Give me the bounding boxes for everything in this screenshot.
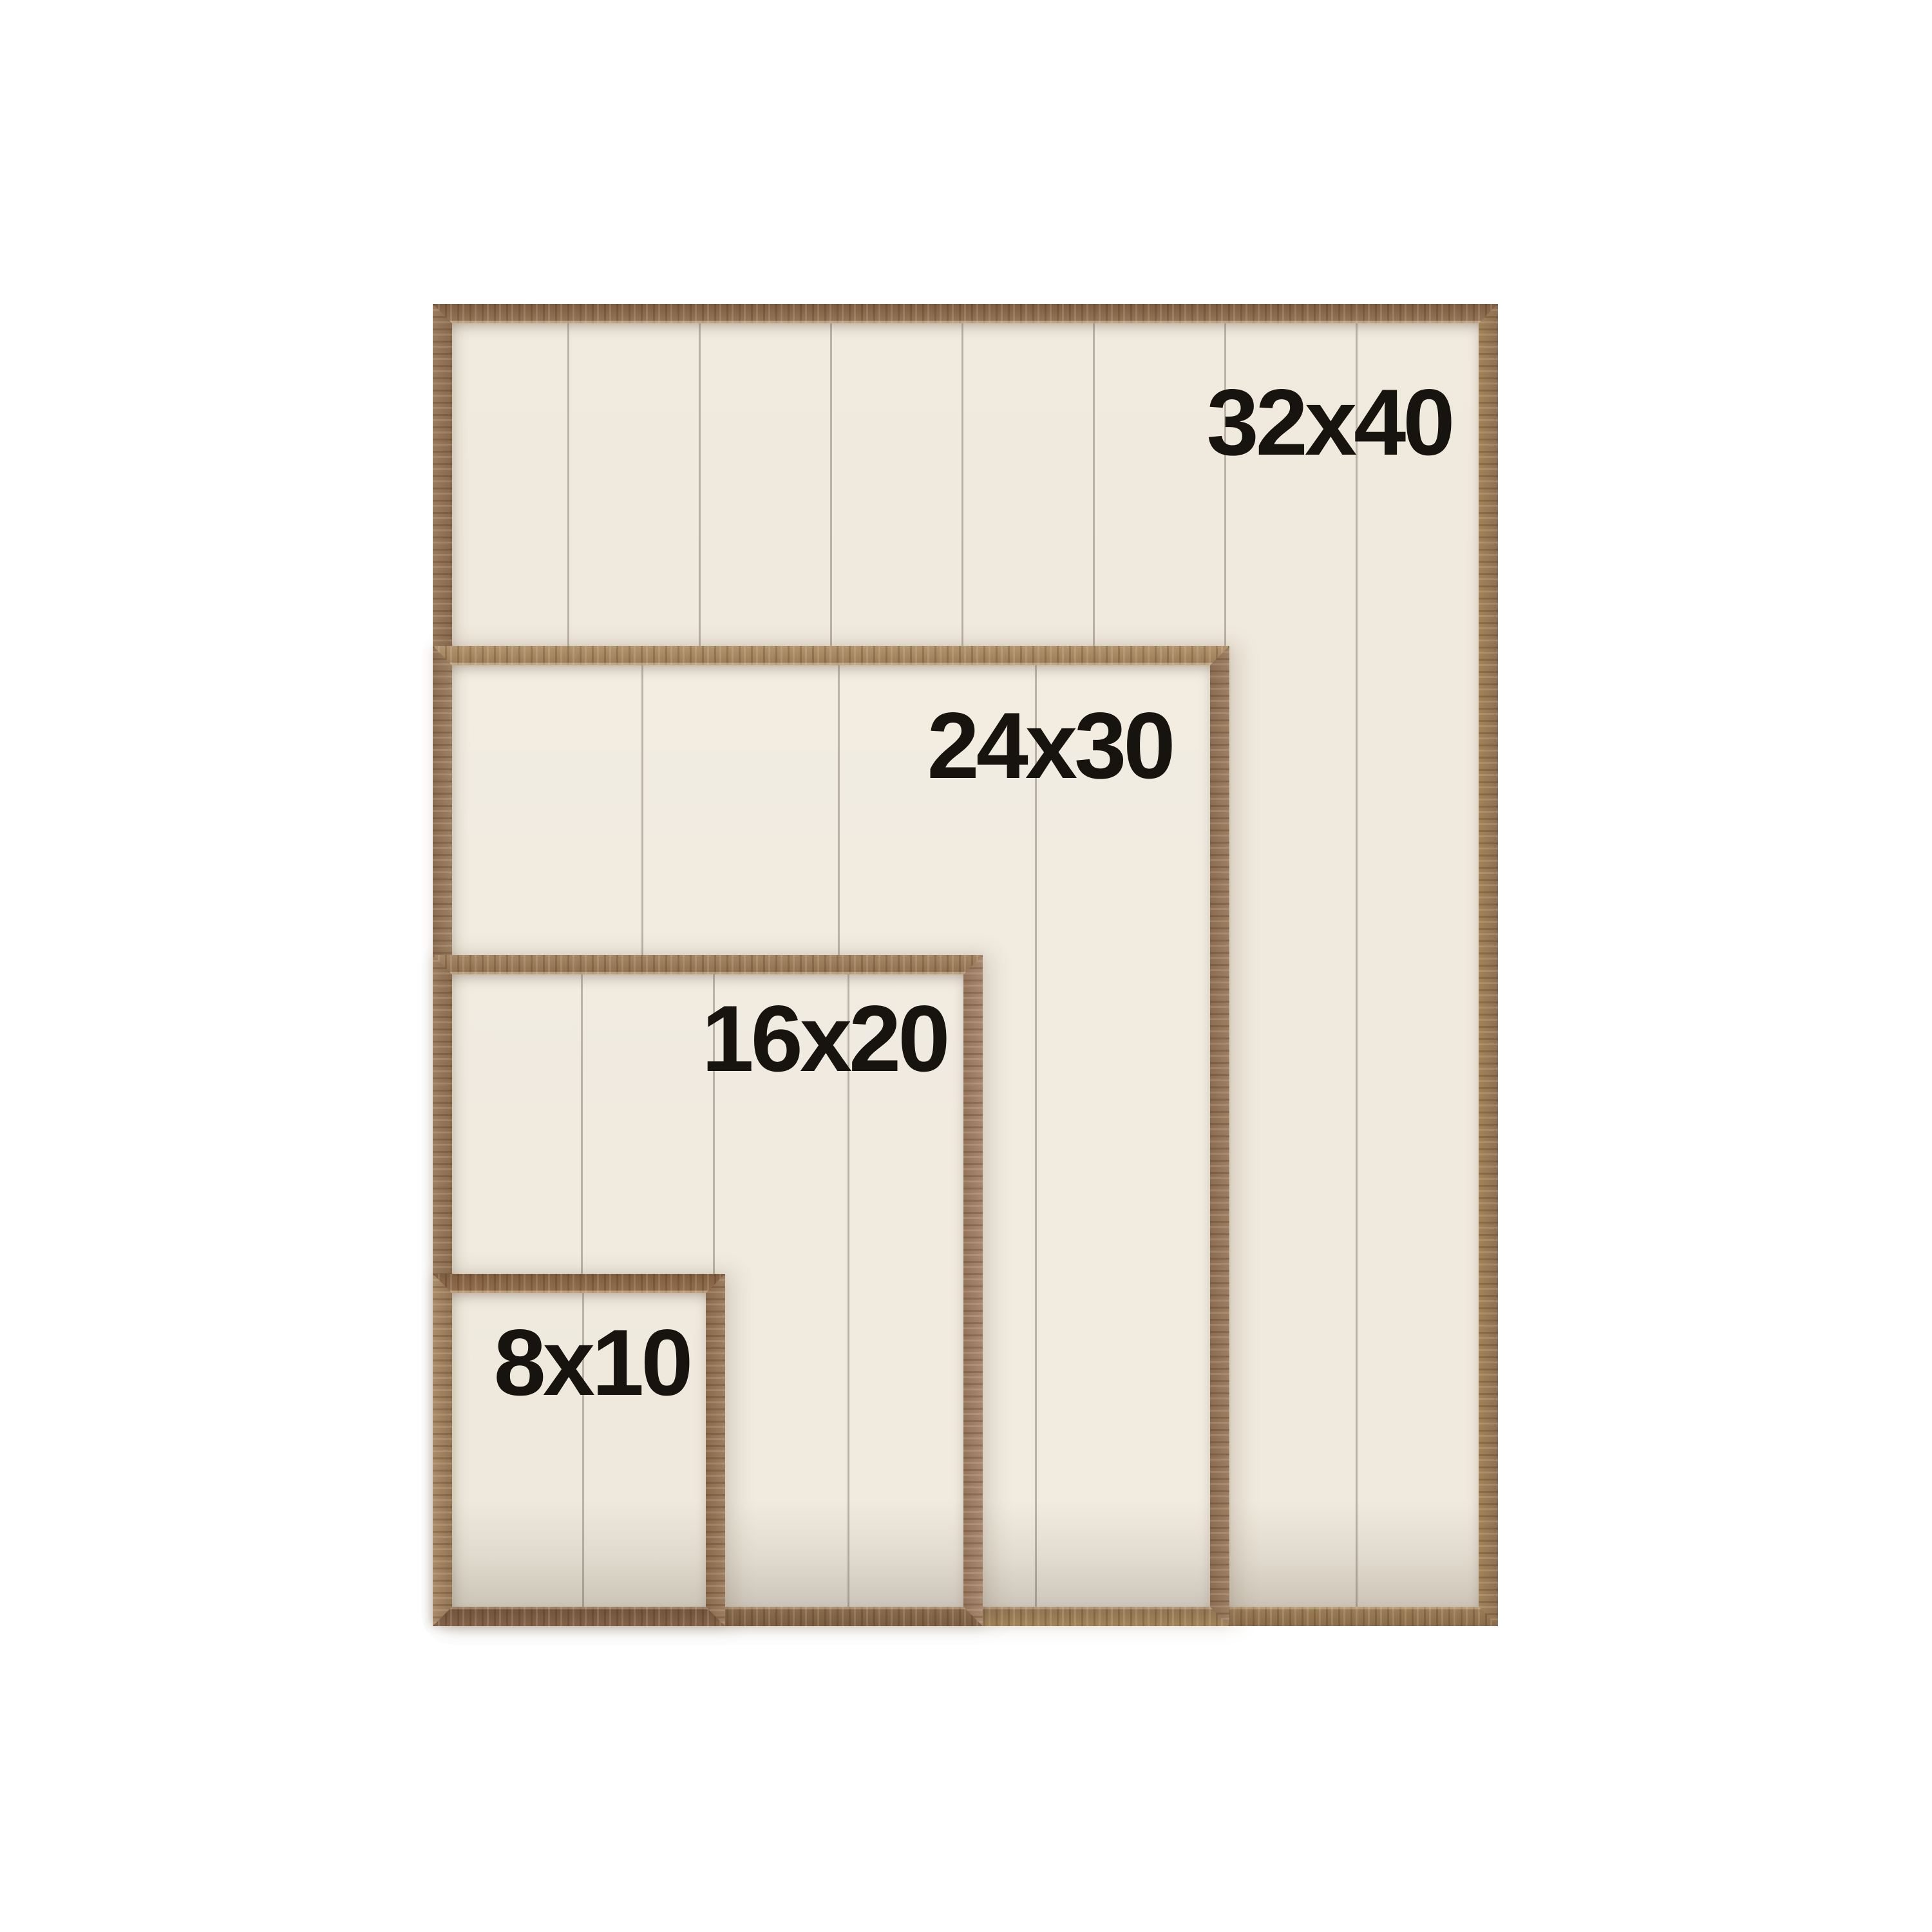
wood-rail-right	[706, 1274, 725, 1626]
wood-rail-bottom	[433, 1607, 725, 1626]
wood-rail-left	[433, 1274, 452, 1626]
size-comparison-figure: 32x40 24x30 16x20	[0, 0, 1932, 1932]
wood-rail-right	[1479, 304, 1498, 1626]
size-label-32x40: 32x40	[1207, 368, 1452, 477]
plank-seam	[1356, 323, 1358, 1607]
size-label-8x10: 8x10	[494, 1309, 690, 1417]
wood-rail-right	[963, 955, 983, 1626]
shiplap-panel-8x10: 8x10	[452, 1293, 706, 1607]
size-label-16x20: 16x20	[702, 985, 947, 1093]
wood-rail-right	[1210, 646, 1229, 1626]
wood-rail-top	[433, 955, 983, 974]
wood-rail-top	[433, 646, 1229, 665]
wood-rail-top	[433, 304, 1498, 323]
size-label-24x30: 24x30	[927, 692, 1173, 800]
frame-8x10: 8x10	[433, 1274, 725, 1626]
wood-rail-top	[433, 1274, 725, 1293]
plank-seam	[1035, 665, 1037, 1607]
